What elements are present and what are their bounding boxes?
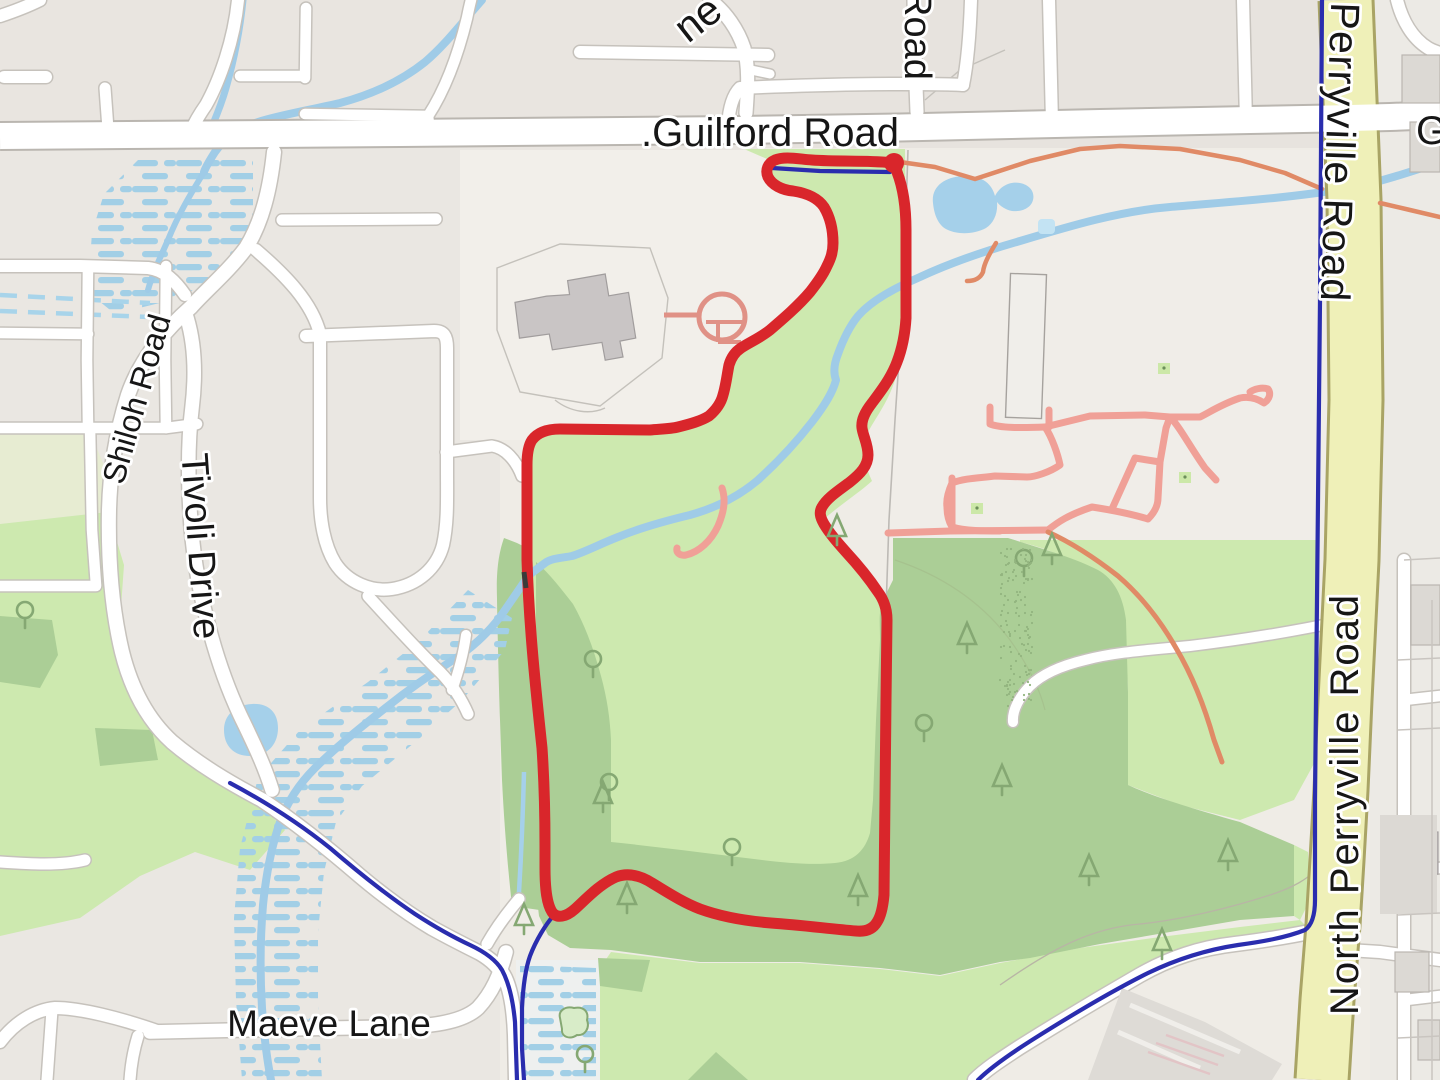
svg-text:North Perryville Road: North Perryville Road	[1323, 593, 1367, 1015]
svg-text:Maeve Lane: Maeve Lane	[227, 1003, 431, 1044]
svg-text:Road: Road	[896, 0, 938, 80]
svg-text:Gu: Gu	[1416, 109, 1440, 153]
svg-text:.Guilford Road: .Guilford Road	[641, 111, 899, 155]
